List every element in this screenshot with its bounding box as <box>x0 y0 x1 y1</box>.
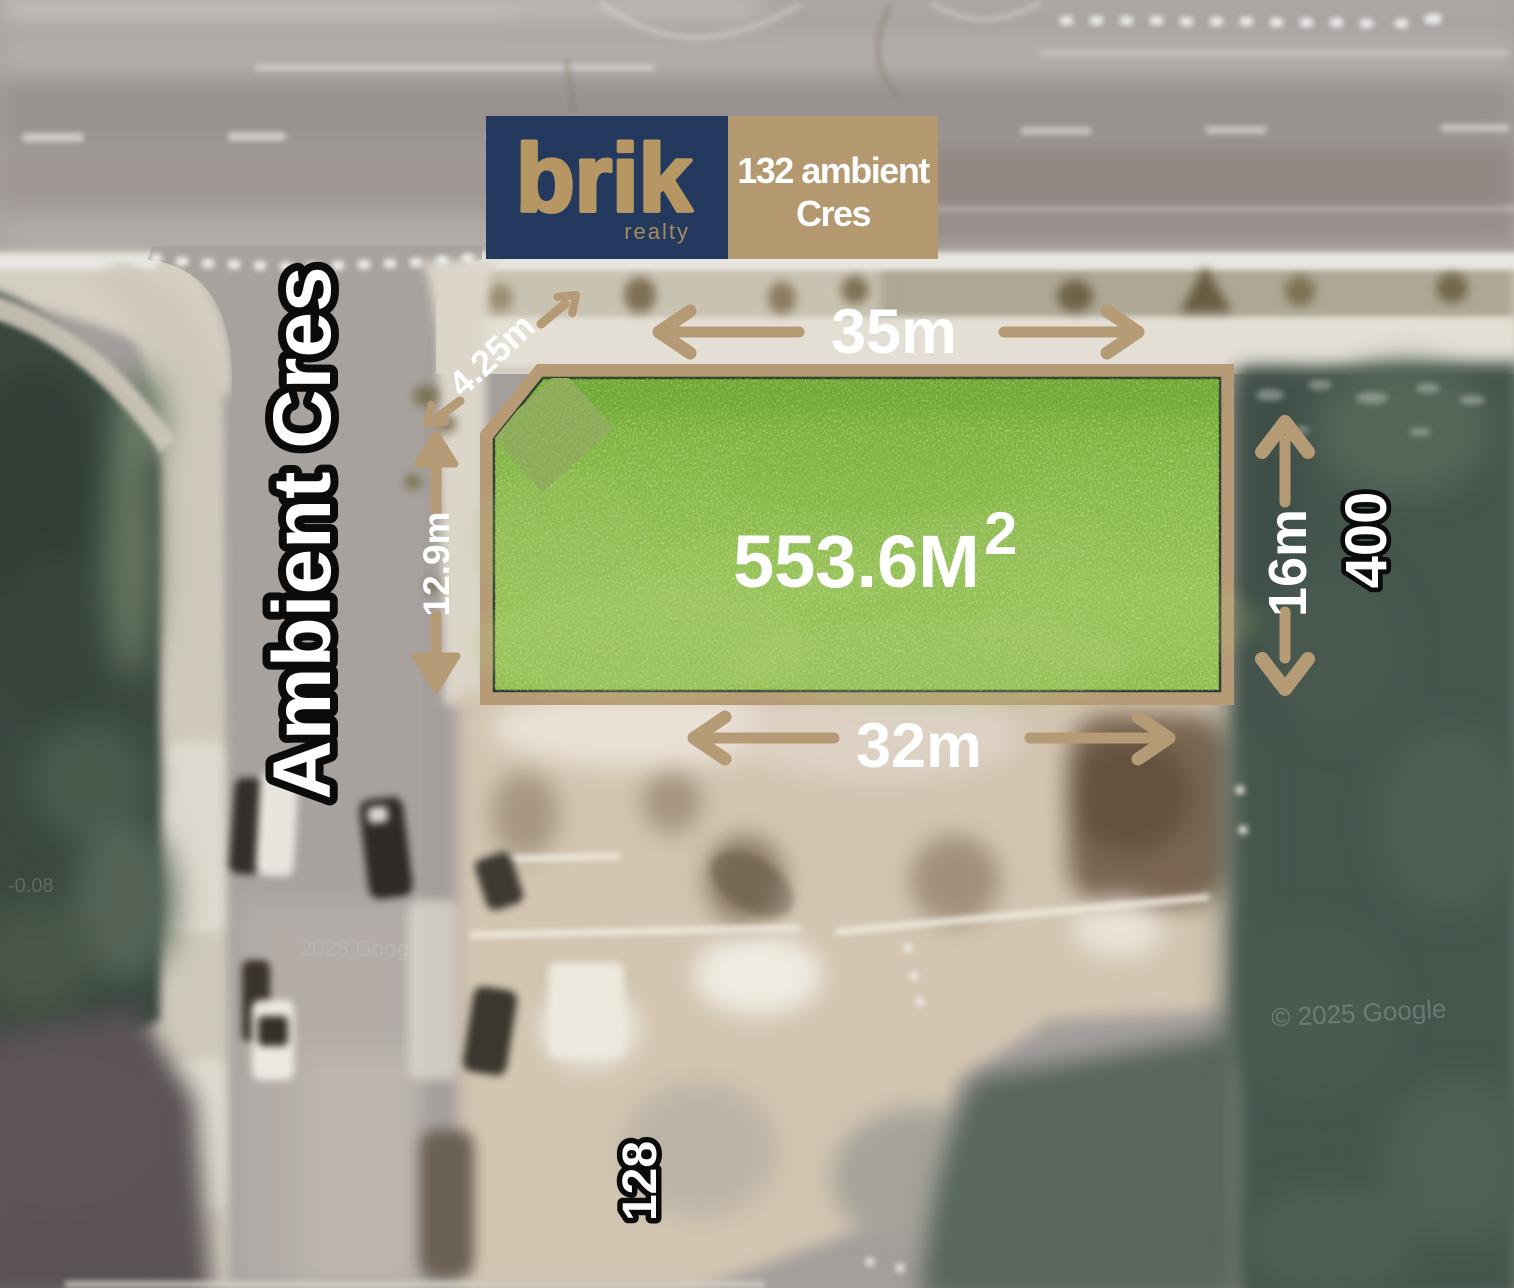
svg-text:12.9m: 12.9m <box>416 512 457 617</box>
svg-text:132 ambient: 132 ambient <box>737 150 930 191</box>
svg-text:35m: 35m <box>831 297 957 367</box>
svg-text:32m: 32m <box>856 711 982 781</box>
svg-text:-0.08: -0.08 <box>8 875 54 897</box>
svg-text:88: 88 <box>0 504 2 553</box>
svg-text:16m: 16m <box>1258 509 1318 617</box>
svg-text:Ambient Cres: Ambient Cres <box>257 266 348 799</box>
svg-text:2025 Goog: 2025 Goog <box>300 936 409 961</box>
svg-text:553.6M: 553.6M <box>733 520 980 603</box>
svg-text:30: 30 <box>0 798 2 847</box>
svg-text:2: 2 <box>984 500 1017 567</box>
svg-text:128: 128 <box>614 1141 667 1221</box>
svg-text:realty: realty <box>624 219 690 244</box>
svg-text:brik: brik <box>516 125 693 232</box>
svg-text:400: 400 <box>1334 492 1399 589</box>
svg-text:Cres: Cres <box>796 193 871 234</box>
